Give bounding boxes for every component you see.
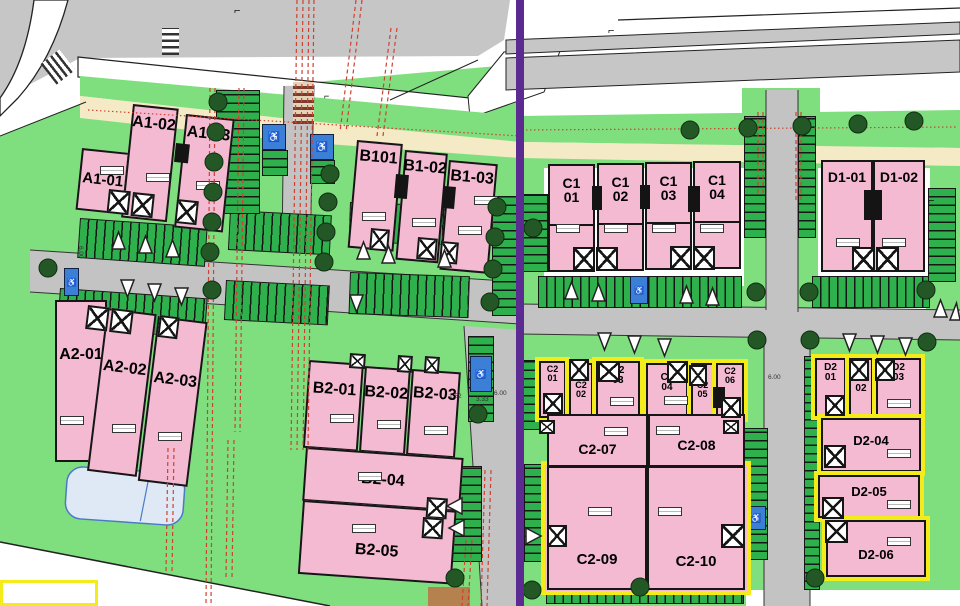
parking-strip [224, 280, 330, 325]
dimension-label: 3.33 [476, 396, 489, 403]
parking-strip [798, 116, 816, 238]
plot-label: A1-02 [131, 114, 176, 135]
plot-tag [330, 414, 354, 423]
plot-tag [887, 449, 911, 458]
service-core [592, 186, 602, 210]
accessible-parking-stall: ♿ [64, 268, 79, 296]
plot-label: C2-08 [677, 438, 715, 452]
parking-strip [812, 276, 930, 308]
garage-box [667, 361, 688, 383]
garage-box [721, 524, 745, 548]
plot-tag [60, 416, 84, 425]
plot-tag [100, 166, 124, 175]
plot-tag [887, 500, 911, 509]
plot-tag [588, 507, 612, 516]
garage-box [598, 361, 620, 382]
plot-label: D2-04 [853, 434, 888, 447]
plot-tag [882, 238, 906, 247]
plot-label: B2-01 [312, 380, 357, 399]
plot-tag [146, 173, 170, 182]
garage-box [130, 192, 154, 218]
plot-b2-01[interactable]: B2-01 [303, 360, 364, 452]
parking-strip [228, 210, 332, 255]
garage-box [876, 247, 899, 272]
service-core [864, 190, 882, 220]
garage-box [547, 525, 567, 547]
accessible-parking-stall: ♿ [262, 124, 286, 150]
plot-tag [658, 507, 682, 516]
garage-box [369, 228, 390, 252]
plot-b2-02[interactable]: B2-02 [359, 366, 411, 455]
garage-box [693, 246, 715, 270]
accessible-parking-stall: ♿ [310, 134, 334, 160]
paved-patch [428, 587, 470, 606]
garage-box [109, 308, 134, 335]
wheelchair-icon: ♿ [67, 278, 77, 287]
plot-tag [458, 226, 482, 235]
garage-box [852, 247, 875, 272]
garage-box [723, 420, 739, 434]
service-core [640, 185, 650, 209]
plot-label: C2-10 [676, 554, 717, 569]
service-core [174, 143, 190, 163]
plot-label: D1-01 [828, 170, 866, 184]
plot-label: C1 02 [612, 175, 630, 204]
garage-box [825, 520, 848, 543]
plot-tag [700, 224, 724, 233]
garage-box [875, 359, 895, 381]
garage-box [422, 517, 444, 539]
corner-marker-icon: ⌐ [324, 92, 329, 101]
parking-strip [349, 272, 470, 318]
plot-c2-07[interactable]: C2-07 [547, 414, 648, 467]
wheelchair-icon: ♿ [268, 132, 280, 143]
garage-box [596, 247, 618, 271]
plot-tag [424, 426, 448, 435]
garage-box [157, 315, 180, 339]
wheelchair-icon: ♿ [634, 286, 644, 295]
accessible-parking-stall: ♿ [630, 276, 648, 304]
garage-box [174, 199, 198, 225]
dimension-label: 6.00 [77, 246, 84, 259]
garage-box [349, 353, 366, 369]
plot-label: D2-05 [851, 485, 886, 498]
plot-label: B2-02 [364, 384, 409, 403]
garage-box [426, 497, 448, 519]
phase-boundary-line [516, 0, 524, 606]
parking-strip [522, 194, 548, 272]
plot-tag [352, 524, 376, 533]
plot-label: B2-05 [354, 542, 399, 561]
plot-b2-03[interactable]: B2-03 [406, 369, 461, 458]
garage-box [539, 420, 555, 434]
plot-tag [556, 224, 580, 233]
corner-marker-icon: ⌐ [608, 26, 614, 37]
wheelchair-icon: ♿ [316, 142, 328, 153]
plot-label: C2 01 [547, 365, 559, 383]
plot-tag [474, 196, 498, 205]
crosswalk [293, 82, 314, 124]
plot-tag [158, 432, 182, 441]
plot-label: C1 04 [708, 173, 726, 202]
plot-tag [656, 426, 680, 435]
garage-box [439, 241, 459, 264]
plot-tag [836, 238, 860, 247]
garage-box [824, 445, 846, 468]
crosswalk [162, 28, 179, 55]
plot-label: C2-07 [578, 442, 616, 456]
garage-box [569, 359, 589, 381]
garage-box [822, 497, 844, 519]
plot-label: B1-03 [450, 168, 495, 188]
dimension-label: 1.52 [449, 393, 462, 400]
plot-tag [604, 427, 628, 436]
plot-tag [887, 537, 911, 546]
plot-label: D2-06 [858, 548, 893, 561]
parking-strip [492, 196, 519, 316]
garage-box [85, 305, 110, 332]
plot-label: A2-03 [153, 370, 198, 392]
parking-strip [744, 116, 766, 238]
garage-box [543, 393, 563, 414]
plot-label: C1 01 [563, 176, 581, 205]
site-plan: ♿ ♿ ♿ ♿ ♿ ♿ A1-01 A1-02 A1-03 B101 B1-02… [0, 0, 960, 606]
garage-box [689, 365, 707, 386]
plot-label: C2 02 [575, 381, 587, 399]
service-core [442, 186, 456, 209]
plot-tag [610, 397, 634, 406]
accessible-parking-stall: ♿ [470, 356, 492, 392]
plot-label: C2 06 [724, 367, 736, 385]
plot-label: B1-02 [403, 158, 448, 178]
plot-tag [664, 396, 688, 405]
plot-label: D1-02 [880, 170, 918, 184]
garage-box [416, 237, 438, 261]
plot-tag [377, 420, 401, 429]
plot-tag [196, 181, 220, 190]
service-core [394, 174, 409, 199]
plot-label: C2-09 [577, 552, 618, 567]
plot-label: A2-02 [102, 358, 147, 380]
plot-tag [358, 472, 382, 481]
plot-label: C1 03 [660, 174, 678, 203]
garage-box [849, 359, 869, 381]
garage-box [670, 246, 692, 270]
plot-tag [412, 218, 436, 227]
dimension-label: 6.00 [494, 390, 507, 397]
garage-box [397, 355, 413, 373]
service-core [688, 186, 700, 212]
wheelchair-icon: ♿ [475, 369, 486, 380]
plot-label: A2-01 [59, 347, 103, 363]
dimension-label: 6.00 [768, 374, 781, 381]
garage-box [573, 247, 595, 271]
plot-tag [112, 424, 136, 433]
crosswalk [41, 49, 76, 84]
plot-tag [652, 224, 676, 233]
plot-tag [887, 399, 911, 408]
plot-label: A1-03 [186, 124, 231, 145]
corner-marker-icon: ⌐ [234, 6, 240, 17]
parking-strip [310, 160, 335, 184]
wheelchair-icon: ♿ [750, 513, 761, 524]
plot-tag [362, 212, 386, 221]
plot-label: B101 [359, 148, 399, 168]
garage-box [721, 397, 741, 418]
garage-box [424, 356, 440, 374]
garage-box [825, 395, 845, 416]
corner-marker-icon: ⌐ [928, 196, 934, 207]
floor-divider [694, 221, 740, 223]
legend-box [0, 580, 98, 606]
parking-strip [262, 150, 288, 176]
garage-box [106, 189, 130, 215]
plot-label: D2 01 [824, 363, 837, 383]
plot-tag [604, 224, 628, 233]
